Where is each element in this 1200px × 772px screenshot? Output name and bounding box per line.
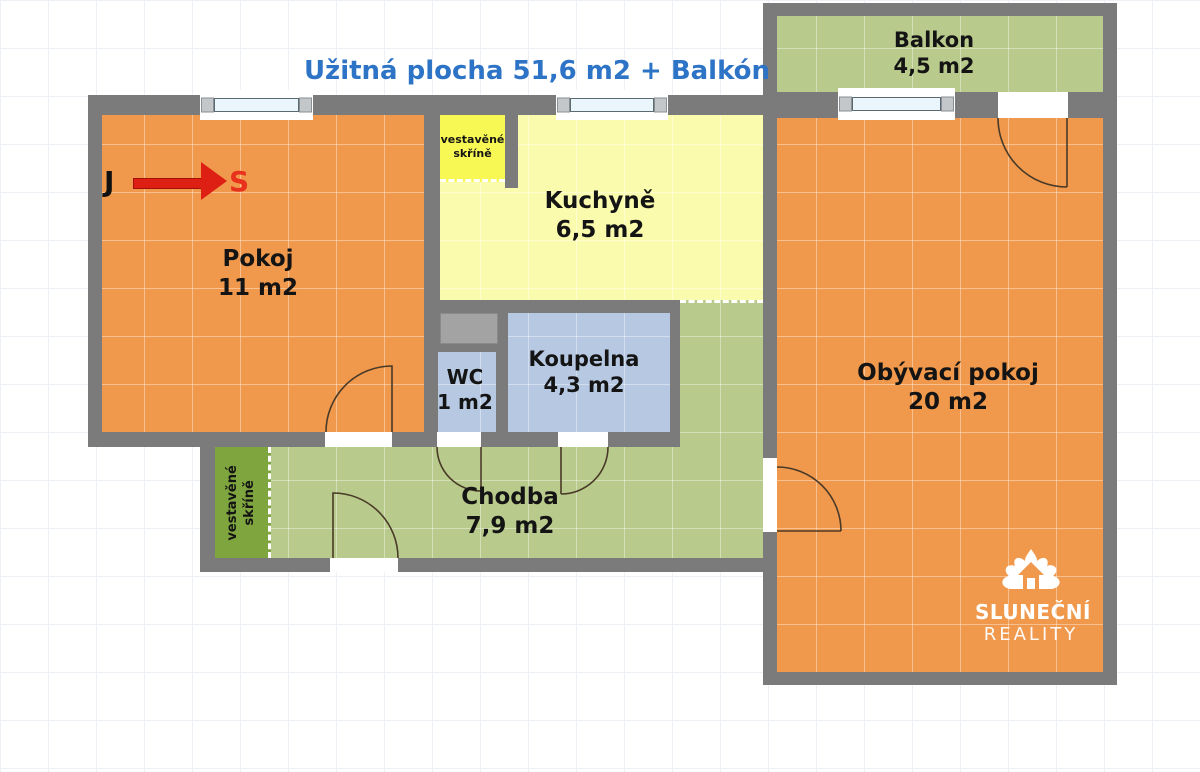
wardrobe-hall-label-line2: skříně [242, 465, 259, 540]
wall-left [88, 95, 102, 447]
wardrobe-kitchen-label-line1: vestavěné [441, 133, 505, 147]
window-jamb [941, 97, 954, 112]
compass-south-label: J [104, 165, 114, 198]
logo-name-line1: SLUNEČNÍ [975, 600, 1087, 624]
door-opening-balcony [998, 92, 1068, 118]
room-name: Kuchyně [545, 187, 656, 216]
compass-north-label: S [229, 165, 249, 198]
window-pokoj [200, 90, 313, 120]
window-glass [214, 98, 299, 112]
label-balkon: Balkon 4,5 m2 [893, 27, 974, 80]
room-name: WC [437, 365, 493, 390]
wardrobe-kitchen: vestavěné skříně [440, 115, 505, 182]
room-area: 1 m2 [437, 390, 493, 415]
wall-chodba-left [200, 447, 215, 572]
logo-sun-house-icon [999, 548, 1063, 594]
window-kuchyne [556, 90, 668, 120]
door-opening-wc [437, 432, 481, 447]
wardrobe-kitchen-label-line2: skříně [441, 147, 505, 161]
wall-wardrobe-stub [505, 115, 518, 188]
door-opening-koupelna [558, 432, 608, 447]
wall-chodba-bottom [200, 558, 777, 572]
wardrobe-hall-label-line1: vestavěné [225, 465, 242, 540]
compass-arrowhead-icon [201, 162, 227, 200]
wall-living-bottom [763, 672, 1117, 685]
room-name: Pokoj [218, 245, 298, 274]
compass-arrow-icon [133, 178, 205, 189]
logo-name-line2: REALITY [975, 624, 1087, 645]
agency-logo: SLUNEČNÍ REALITY [975, 548, 1087, 645]
wall-top [88, 95, 775, 115]
room-name: Koupelna [529, 346, 640, 372]
wardrobe-hall: vestavěné skříně [215, 447, 271, 558]
room-area: 4,3 m2 [529, 372, 640, 398]
room-name: Chodba [461, 483, 559, 512]
room-name: Obývací pokoj [857, 359, 1039, 388]
room-area: 11 m2 [218, 274, 298, 303]
window-obyvaci [838, 88, 955, 120]
label-obyvaci-pokoj: Obývací pokoj 20 m2 [857, 359, 1039, 417]
room-area: 20 m2 [857, 388, 1039, 417]
room-area: 4,5 m2 [893, 53, 974, 79]
door-opening-living [763, 458, 777, 532]
window-glass [570, 98, 654, 112]
room-name: Balkon [893, 27, 974, 53]
window-jamb [201, 98, 214, 113]
window-jamb [299, 98, 312, 113]
label-pokoj: Pokoj 11 m2 [218, 245, 298, 303]
door-opening-pokoj [325, 432, 392, 447]
room-area: 6,5 m2 [545, 216, 656, 245]
floor-plan: Užitná plocha 51,6 m2 + Balkón vestavěné… [0, 0, 1200, 772]
label-koupelna: Koupelna 4,3 m2 [529, 346, 640, 399]
room-area: 7,9 m2 [461, 512, 559, 541]
window-jamb [654, 98, 667, 113]
wall-balcony-top [763, 3, 1117, 16]
room-chodba-passage [680, 300, 763, 447]
window-glass [852, 97, 941, 111]
window-jamb [839, 97, 852, 112]
plan-title: Užitná plocha 51,6 m2 + Balkón [304, 56, 770, 86]
label-chodba: Chodba 7,9 m2 [461, 483, 559, 541]
duct-shaft [440, 313, 498, 344]
window-jamb [557, 98, 570, 113]
door-opening-entry [330, 558, 398, 572]
label-wc: WC 1 m2 [437, 365, 493, 415]
label-kuchyne: Kuchyně 6,5 m2 [545, 187, 656, 245]
